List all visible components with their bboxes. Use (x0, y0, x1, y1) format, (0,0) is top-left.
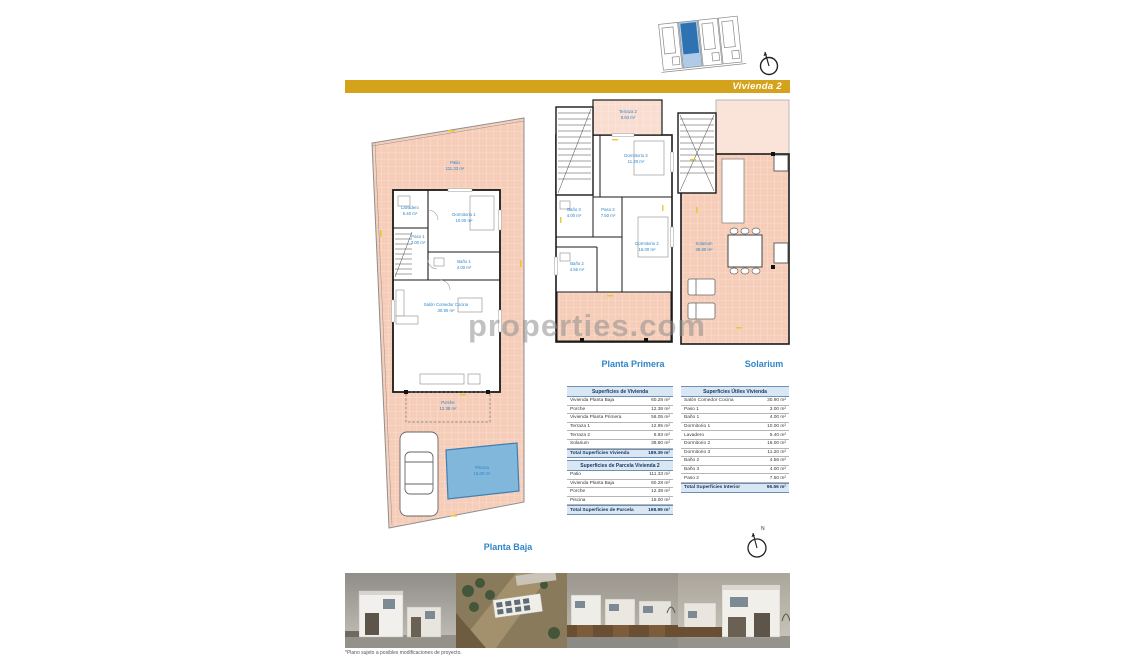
header-bar: Vivienda 2 (345, 80, 790, 93)
svg-text:12.38 m²: 12.38 m² (440, 406, 458, 411)
plan-caption-planta-baja: Planta Baja (448, 542, 568, 552)
table-row: Dormitorio 110.00 m² (681, 423, 789, 432)
svg-text:8.93 m²: 8.93 m² (621, 115, 636, 120)
svg-text:Paso 1: Paso 1 (411, 234, 425, 239)
table-row: Vivienda Planta Baja60.28 m² (567, 397, 673, 406)
table-row: Paso 13.00 m² (681, 406, 789, 415)
table-row: Piscina15.00 m² (567, 497, 673, 506)
table-row: Dormitorio 311.20 m² (681, 449, 789, 458)
svg-text:Patio: Patio (450, 160, 460, 165)
svg-text:4.00 m²: 4.00 m² (567, 213, 582, 218)
svg-text:Dormitorio 2: Dormitorio 2 (635, 241, 659, 246)
plan-caption-solarium: Solarium (706, 359, 822, 369)
table-row: Baño 14.00 m² (681, 414, 789, 423)
svg-text:30.90 m²: 30.90 m² (438, 308, 456, 313)
svg-text:3.00 m²: 3.00 m² (411, 240, 426, 245)
render-photo-2 (456, 573, 567, 648)
svg-text:11.20 m²: 11.20 m² (628, 159, 645, 164)
svg-text:5.40 m²: 5.40 m² (403, 211, 418, 216)
render-photo-3 (567, 573, 678, 648)
svg-text:Solarium: Solarium (696, 241, 713, 246)
table-total-row: Total Superficies Vivienda189.39 m² (567, 449, 673, 459)
svg-text:Baño 1: Baño 1 (457, 259, 471, 264)
svg-text:Baño 2: Baño 2 (570, 261, 584, 266)
watermark: properties.com (468, 308, 706, 344)
svg-text:Salón Comedor Cocina: Salón Comedor Cocina (424, 302, 469, 307)
table-row: Patio111.33 m² (567, 471, 673, 480)
table-total-row: Total Superficies Interior96.56 m² (681, 483, 789, 493)
table-row: Porche12.38 m² (567, 406, 673, 415)
svg-text:4.00 m²: 4.00 m² (457, 265, 472, 270)
table-row: Dormitorio 216.00 m² (681, 440, 789, 449)
table-title: Superficies de Parcela Vivienda 2 (567, 460, 673, 471)
svg-text:38.80 m²: 38.80 m² (696, 247, 714, 252)
table-row: Solarium38.80 m² (567, 440, 673, 449)
render-photo-1 (345, 573, 456, 648)
svg-text:Porche: Porche (441, 400, 455, 405)
site-plan-thumbnail (656, 12, 748, 78)
table-row: Vivienda Planta Primera56.05 m² (567, 414, 673, 423)
table-row: Porche12.38 m² (567, 488, 673, 497)
svg-text:Baño 3: Baño 3 (567, 207, 581, 212)
table-row: Baño 34.00 m² (681, 466, 789, 475)
svg-text:N: N (761, 526, 765, 532)
svg-text:Piscina: Piscina (475, 465, 489, 470)
table-title: Superficies de Vivienda (567, 386, 673, 397)
svg-text:Dormitorio 3: Dormitorio 3 (624, 153, 648, 158)
svg-text:15.00 m²: 15.00 m² (474, 471, 492, 476)
table-row: Paso 27.50 m² (681, 474, 789, 483)
compass-icon-top (754, 44, 784, 78)
dining-set (728, 228, 762, 274)
svg-text:16.00 m²: 16.00 m² (639, 247, 657, 252)
room-labels: Solarium 38.80 m² (696, 241, 714, 252)
plan-sheet: Vivienda 2 (0, 0, 1130, 665)
table-row: Terraza 28.93 m² (567, 431, 673, 440)
unit-title: Vivienda 2 (732, 81, 790, 92)
svg-text:Terraza 2: Terraza 2 (619, 109, 638, 114)
render-photo-strip (345, 573, 790, 648)
svg-text:4.56 m²: 4.56 m² (570, 267, 585, 272)
car (400, 432, 438, 516)
render-photo-4 (678, 573, 790, 648)
table-row: Lavadero5.40 m² (681, 431, 789, 440)
table-row: Baño 24.56 m² (681, 457, 789, 466)
table-row: Salón Comedor Cocina30.90 m² (681, 397, 789, 406)
table-title: Superficies Útiles Vivienda (681, 386, 789, 397)
svg-text:Lavadero: Lavadero (401, 205, 420, 210)
compass-icon-bottom: N (740, 520, 776, 564)
svg-text:10.00 m²: 10.00 m² (456, 218, 474, 223)
svg-text:111.33 m²: 111.33 m² (446, 166, 465, 171)
footnote: *Plano sujeto a posibles modificaciones … (345, 650, 462, 656)
svg-text:Dormitorio 1: Dormitorio 1 (452, 212, 476, 217)
table-row: Vivienda Planta Baja60.28 m² (567, 480, 673, 489)
table-superficies-utiles: Superficies Útiles ViviendaSalón Comedor… (681, 386, 789, 493)
svg-text:7.50 m²: 7.50 m² (601, 213, 616, 218)
table-row: Terraza 112.95 m² (567, 423, 673, 432)
plan-caption-planta-primera: Planta Primera (570, 359, 696, 369)
table-superficies-vivienda: Superficies de ViviendaVivienda Planta B… (567, 386, 673, 458)
svg-text:Paso 2: Paso 2 (601, 207, 615, 212)
table-total-row: Total Superficies de Parcela198.99 m² (567, 505, 673, 515)
table-superficies-parcela: Superficies de Parcela Vivienda 2Patio11… (567, 460, 673, 515)
